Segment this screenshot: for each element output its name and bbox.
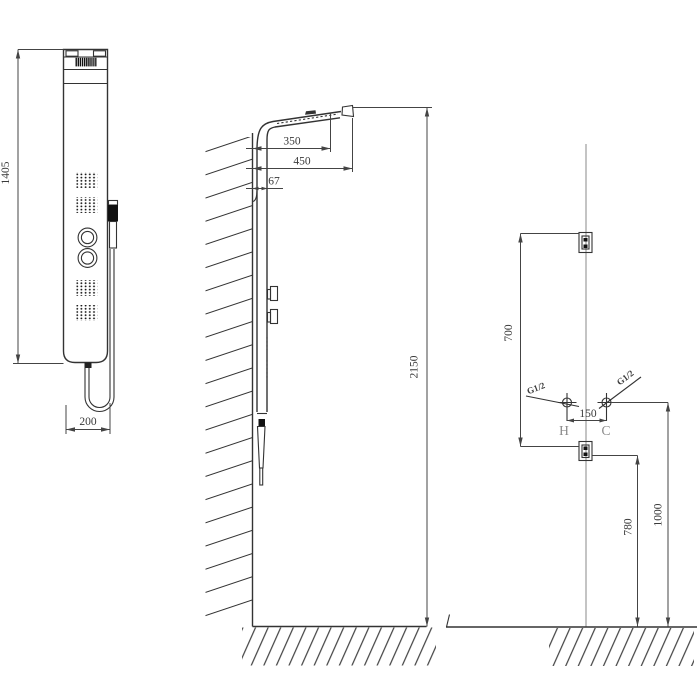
install-height-label: 2150: [409, 355, 421, 378]
dim-150: 150: [567, 408, 607, 423]
head-offset-label: 350: [283, 136, 301, 148]
technical-drawing-page: 1405 200: [0, 0, 700, 700]
hand-shower: [108, 201, 118, 249]
panel-top-tab-left: [66, 51, 78, 56]
head-reach-label: 450: [293, 156, 311, 168]
inlet-spacing-label: 150: [579, 408, 597, 420]
inlet-height-label: 1000: [653, 503, 665, 526]
panel-top-tab-right: [94, 51, 106, 56]
dim-700: 700: [503, 234, 579, 447]
cold-thread-label: G1/2: [615, 368, 636, 387]
body-jet-grid: [77, 280, 98, 296]
cold-label: C: [601, 423, 610, 438]
shower-arm-detail: [305, 110, 316, 114]
plumbing-view: 700 G1/2 G1/2 150 H C: [446, 144, 697, 666]
front-width-label: 200: [79, 416, 97, 428]
floor-hatching: [242, 628, 436, 666]
dim-2150: 2150: [353, 108, 432, 627]
hot-label: H: [559, 423, 569, 438]
hot-thread-label: G1/2: [525, 380, 546, 396]
dim-780: 780: [592, 456, 640, 627]
floor-hatching-right: [549, 628, 694, 666]
body-jet-grid: [77, 197, 98, 213]
dim-1405: 1405: [0, 50, 64, 364]
floor-end-tick: [447, 615, 450, 628]
dim-200: 200: [66, 403, 110, 434]
technical-drawing: 1405 200: [0, 0, 700, 700]
outlet-height-label: 780: [623, 518, 635, 536]
panel-depth-label: 67: [268, 176, 280, 188]
knob-side-profile: [268, 287, 278, 324]
control-knob-top: [78, 228, 97, 247]
side-view: 350 450 67 2150: [206, 106, 437, 666]
body-jet-grid: [77, 172, 98, 188]
dim-1000: 1000: [611, 403, 670, 627]
front-view: 1405 200: [0, 50, 118, 435]
front-height-label: 1405: [0, 161, 12, 184]
hand-shower-side: [258, 419, 266, 485]
control-knob-bottom: [78, 249, 97, 268]
bracket-span-label: 700: [503, 324, 515, 342]
wall-hatching: [206, 137, 253, 620]
hot-inlet: [558, 393, 577, 421]
body-jet-grid: [77, 305, 98, 321]
shower-hose: [85, 249, 115, 412]
shower-head-cap: [342, 106, 354, 117]
shower-head-grille: [75, 58, 97, 67]
